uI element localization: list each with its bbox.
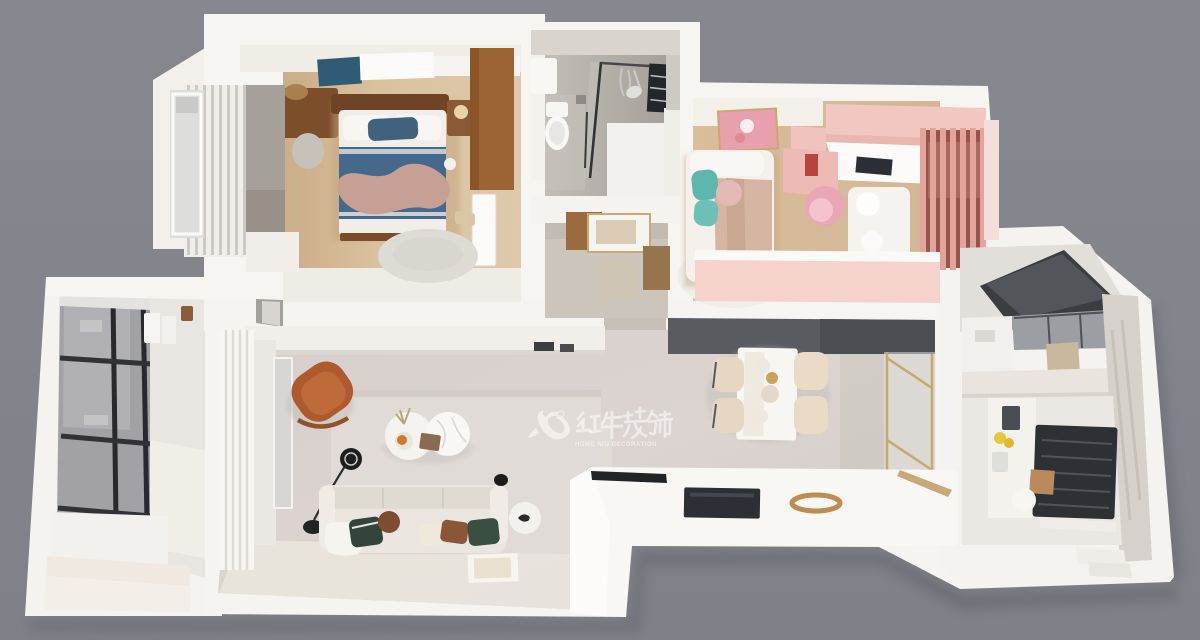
svg-text:HONG NIU DECORATION: HONG NIU DECORATION [575, 442, 657, 448]
